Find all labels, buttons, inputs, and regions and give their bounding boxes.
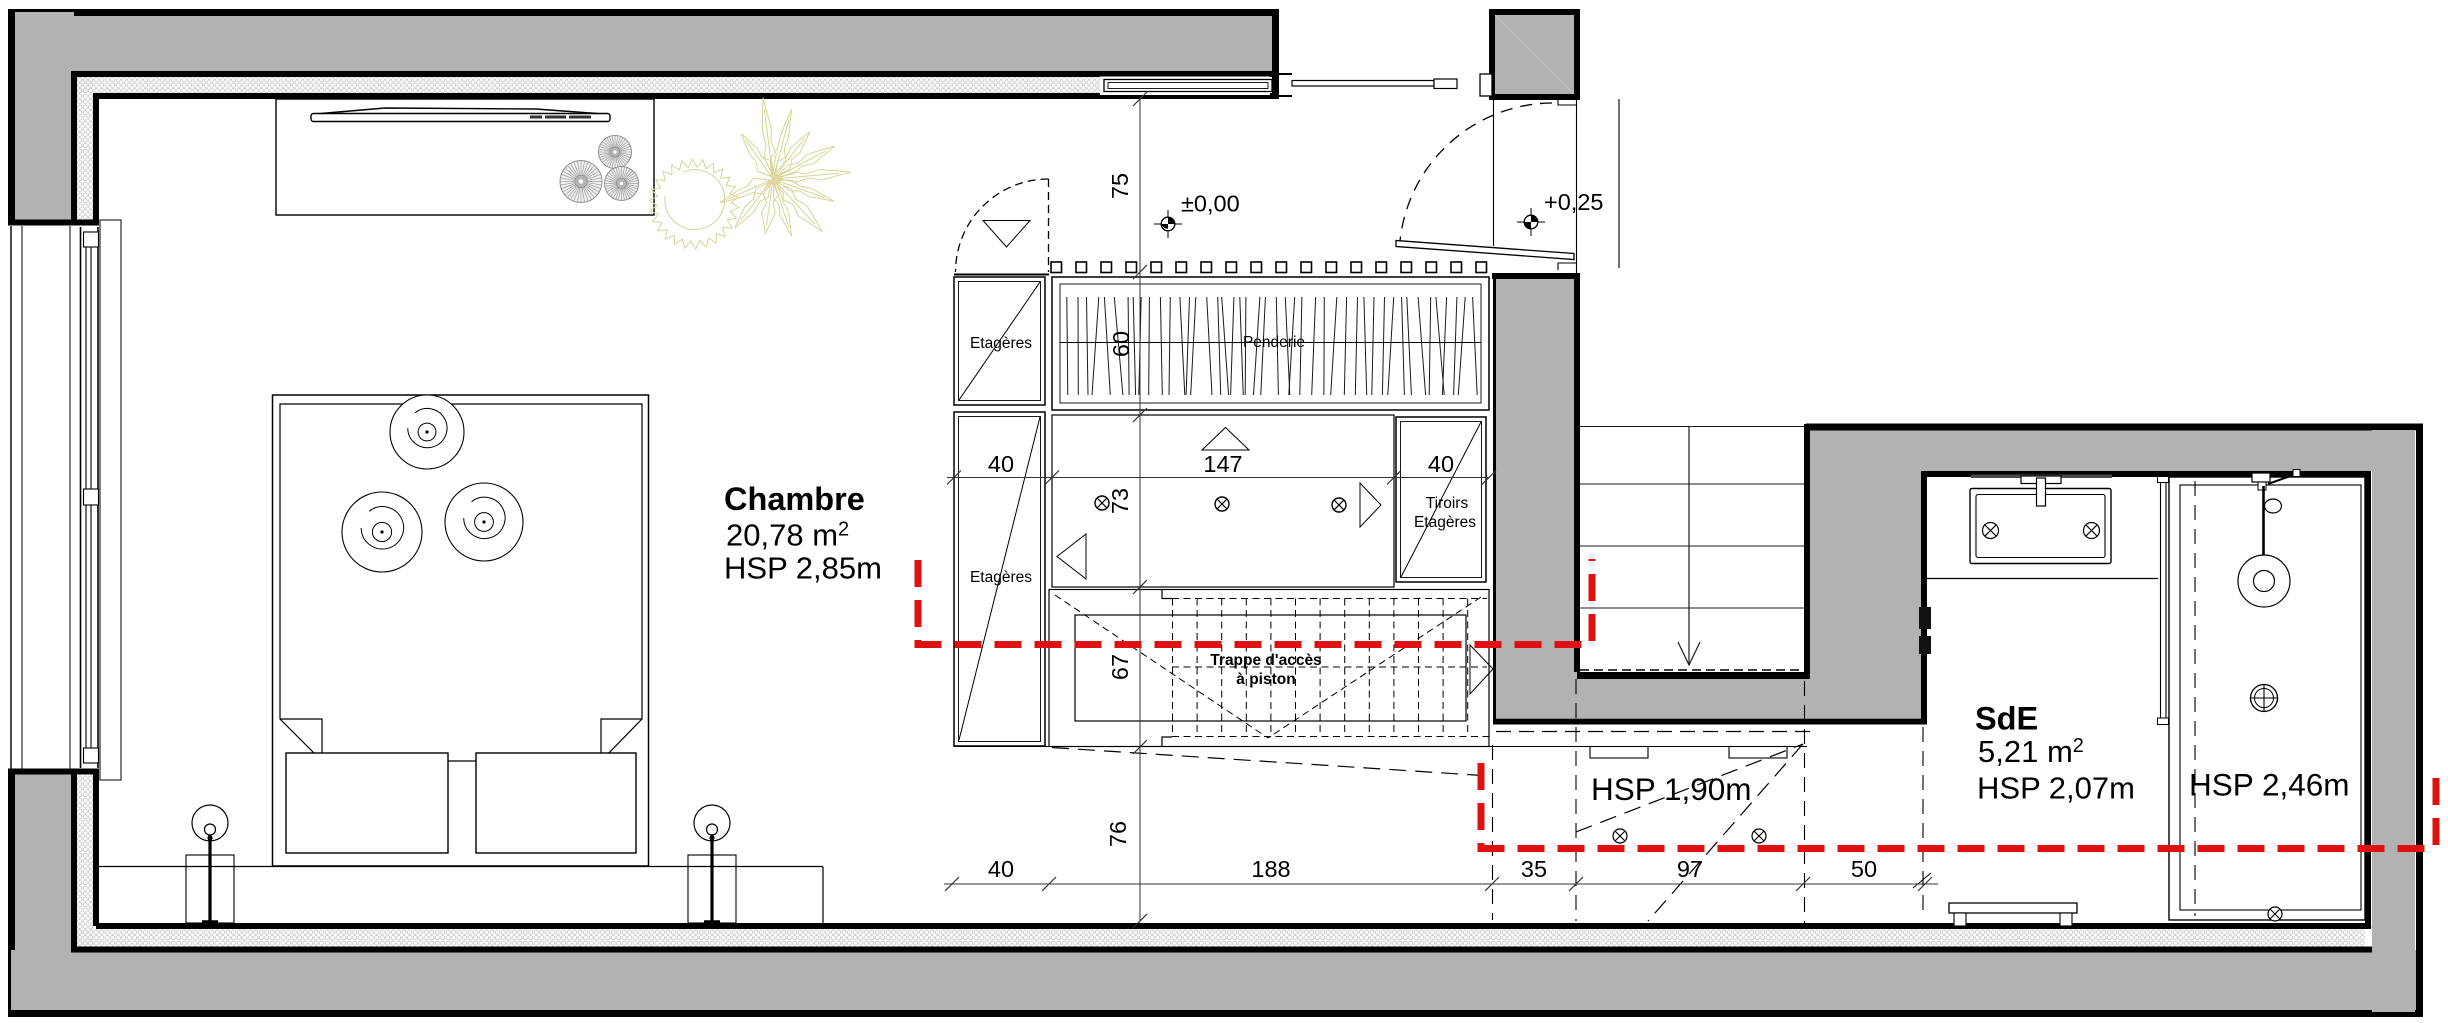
svg-text:35: 35 <box>1521 856 1547 882</box>
svg-text:Trappe d'accès: Trappe d'accès <box>1210 652 1321 669</box>
svg-text:40: 40 <box>988 451 1014 477</box>
svg-text:à piston: à piston <box>1236 671 1295 688</box>
svg-text:40: 40 <box>988 856 1014 882</box>
svg-text:76: 76 <box>1105 821 1131 847</box>
svg-text:HSP 1,90m: HSP 1,90m <box>1591 771 1752 807</box>
svg-text:147: 147 <box>1203 451 1242 477</box>
svg-text:Etagères: Etagères <box>970 569 1032 586</box>
svg-text:HSP 2,07m: HSP 2,07m <box>1977 771 2135 806</box>
svg-text:SdE: SdE <box>1975 701 2038 737</box>
svg-text:±0,00: ±0,00 <box>1181 191 1240 217</box>
svg-text:Etagères: Etagères <box>1414 514 1476 531</box>
svg-text:HSP 2,85m: HSP 2,85m <box>724 551 882 586</box>
svg-text:5,21 m2: 5,21 m2 <box>1978 734 2084 769</box>
svg-text:HSP 2,46m: HSP 2,46m <box>2189 767 2350 803</box>
svg-text:Etagères: Etagères <box>970 335 1032 352</box>
svg-text:Chambre: Chambre <box>724 481 865 517</box>
svg-text:Penderie: Penderie <box>1243 334 1305 351</box>
svg-text:20,78 m2: 20,78 m2 <box>726 518 849 553</box>
svg-text:75: 75 <box>1107 173 1133 199</box>
svg-text:73: 73 <box>1107 488 1133 514</box>
svg-text:60: 60 <box>1108 331 1134 357</box>
svg-text:188: 188 <box>1251 856 1290 882</box>
svg-text:Tiroirs: Tiroirs <box>1426 495 1469 512</box>
svg-text:+0,25: +0,25 <box>1544 189 1603 215</box>
svg-text:40: 40 <box>1428 451 1454 477</box>
svg-text:50: 50 <box>1851 856 1877 882</box>
svg-text:97: 97 <box>1677 856 1703 882</box>
svg-text:67: 67 <box>1107 654 1133 680</box>
